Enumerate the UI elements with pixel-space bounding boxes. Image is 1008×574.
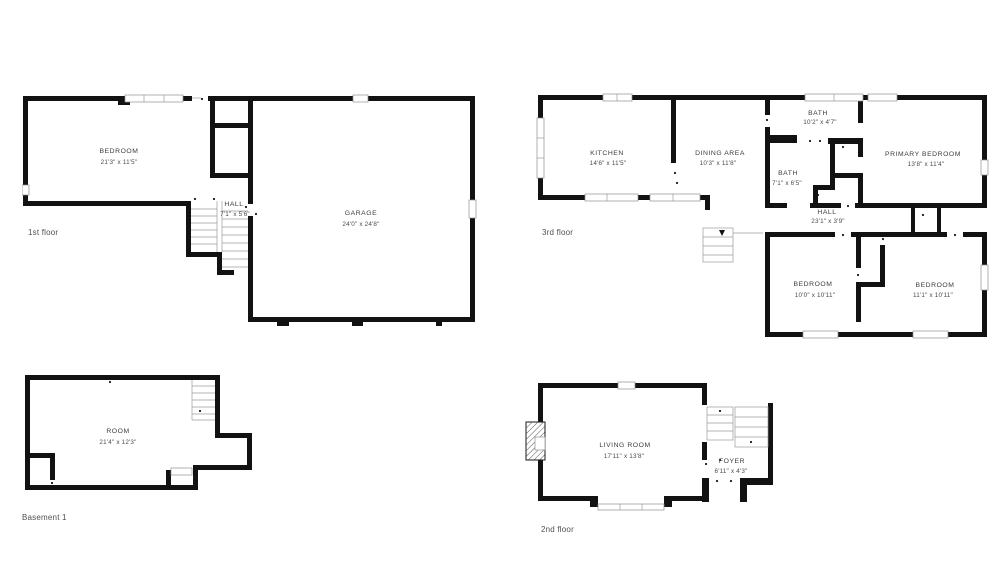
second-floor-stairs (707, 407, 768, 447)
room-label-bath-small: BATH (778, 170, 798, 177)
second-floor-walls (538, 383, 773, 507)
room-dims-hall-3rd: 23'1" x 3'9" (811, 218, 844, 225)
room-dims-foyer: 6'11" x 4'3" (715, 468, 748, 475)
room-label-hall-3rd: HALL (817, 209, 836, 216)
room-dims-bedroom-left: 10'0" x 10'11" (795, 292, 835, 299)
room-dims-dining-area: 10'3" x 11'8" (700, 160, 737, 167)
floor-label-first-floor: 1st floor (28, 228, 58, 237)
floor-label-basement-1: Basement 1 (22, 513, 67, 522)
basement-windows (171, 468, 192, 475)
room-label-garage: GARAGE (345, 210, 377, 217)
room-dims-living-room: 17'11" x 13'8" (604, 453, 644, 460)
third-floor-walls (538, 95, 987, 337)
room-label-primary-bedroom: PRIMARY BEDROOM (885, 151, 961, 158)
room-label-bedroom-right: BEDROOM (916, 282, 955, 289)
room-label-foyer: FOYER (719, 458, 745, 465)
basement-walls (25, 375, 252, 490)
room-dims-bath-small: 7'1" x 6'5" (772, 180, 802, 187)
floor-plans-canvas: BEDROOM 21'3" x 11'5" HALL 7'1" x 5'6" G… (0, 0, 1008, 574)
floor-plan-first-floor: BEDROOM 21'3" x 11'5" HALL 7'1" x 5'6" G… (22, 92, 477, 332)
room-label-bedroom-left: BEDROOM (794, 281, 833, 288)
floor-label-third-floor: 3rd floor (542, 228, 573, 237)
room-label-basement-room: ROOM (106, 428, 129, 435)
floor-plan-third-floor: KITCHEN 14'6" x 11'5" DINING AREA 10'3" … (533, 90, 993, 345)
room-label-living-room: LIVING ROOM (599, 442, 650, 449)
room-dims-hall-1st: 7'1" x 5'6" (220, 211, 250, 218)
room-dims-garage: 24'0" x 24'8" (342, 221, 379, 228)
floor-label-second-floor: 2nd floor (541, 525, 574, 534)
floor-plan-basement-1: ROOM 21'4" x 12'3" (20, 366, 265, 501)
fireplace (526, 422, 545, 460)
room-dims-bedroom-right: 11'1" x 10'11" (913, 292, 953, 299)
third-floor-windows (537, 94, 988, 338)
room-label-bath-top: BATH (808, 110, 828, 117)
room-dims-basement-room: 21'4" x 12'3" (99, 439, 136, 446)
floor-plan-second-floor: LIVING ROOM 17'11" x 13'8" FOYER 6'11" x… (525, 378, 780, 518)
room-label-dining-area: DINING AREA (695, 150, 745, 157)
third-floor-stairs (703, 228, 763, 262)
first-floor-door-markers (194, 98, 257, 215)
room-dims-primary-bedroom: 13'8" x 11'4" (908, 161, 945, 168)
room-label-kitchen: KITCHEN (590, 150, 624, 157)
basement-stairs (192, 380, 215, 420)
room-dims-bedroom-1st: 21'3" x 11'5" (101, 159, 138, 166)
room-dims-kitchen: 14'6" x 11'5" (590, 160, 627, 167)
room-label-bedroom-1st: BEDROOM (100, 148, 139, 155)
room-label-hall-1st: HALL (224, 201, 243, 208)
room-dims-bath-top: 10'2" x 4'7" (803, 119, 836, 126)
